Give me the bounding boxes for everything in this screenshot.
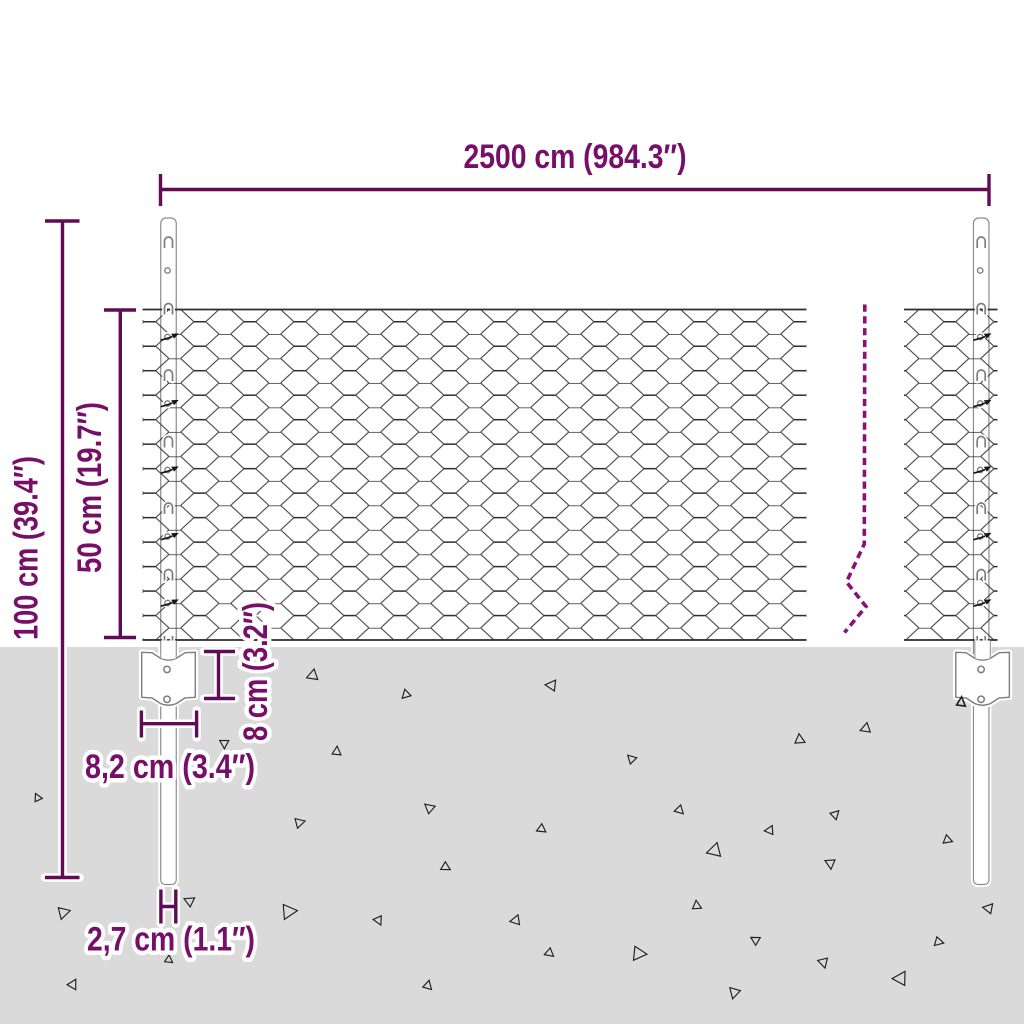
svg-text:2500 cm (984.3″): 2500 cm (984.3″): [464, 138, 687, 176]
svg-text:8 cm (3.2″): 8 cm (3.2″): [237, 602, 275, 741]
svg-text:8,2 cm (3.4″): 8,2 cm (3.4″): [85, 748, 255, 786]
svg-text:100 cm (39.4″): 100 cm (39.4″): [8, 456, 46, 640]
svg-text:50 cm (19.7″): 50 cm (19.7″): [71, 402, 109, 573]
svg-text:2,7 cm (1.1″): 2,7 cm (1.1″): [87, 921, 255, 959]
